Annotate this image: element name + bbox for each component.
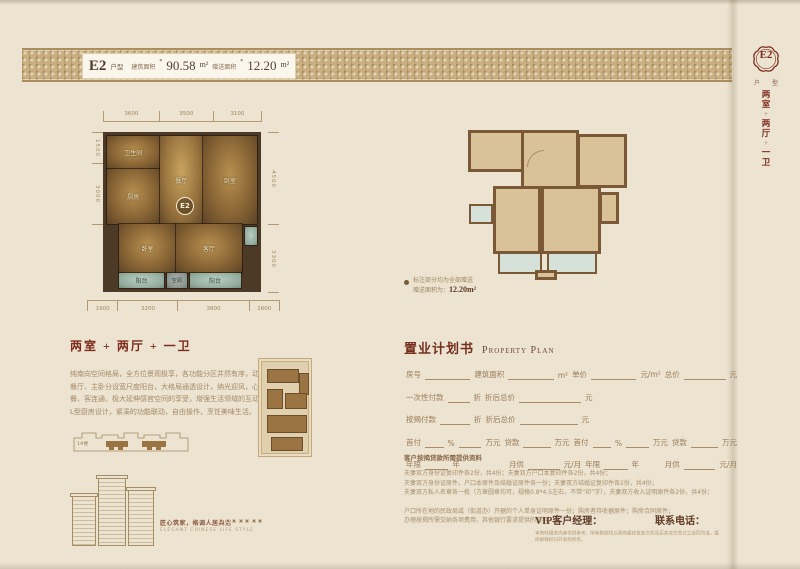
form-blank [523,439,550,448]
slogan-squares [219,519,262,523]
docs-paragraph-1: 夫妻双方身份证复印件各2份，共4份；夫妻双方户口本复印件各2份，共4份；夫妻双方… [404,469,739,498]
area-unit: m² [200,60,209,69]
form-blank [593,439,612,448]
keyplan-strip: 1#楼 [72,428,190,458]
disclaimer: 本资料相关内容仅供参考，所有数据均以政府最终批准文件及买卖双方签订之合同为准，最… [535,530,719,543]
square-icon [252,519,256,523]
bonus-note-line1: 标注部分均为全部赠送 [413,277,543,286]
form-title-cn: 置业计划书 [404,338,474,357]
outline-room [541,186,601,254]
form-blank [684,371,726,380]
outline-room [468,130,524,172]
bonus-note-value: 12.20m² [449,285,476,294]
slogan-en: ELEGANT CHINESE LIFE STYLE [160,528,270,533]
layout-title: 两室 + 两厅 + 一卫 [70,337,310,354]
room-bathroom: 卫生间 [107,136,160,169]
side-unit-label: 户 型 [744,78,788,87]
form-blank [459,439,482,448]
contact-phone-label: 联系电话： [655,512,705,527]
plan-unit-badge: E2 [176,197,194,215]
square-icon [245,519,249,523]
form-blank [691,439,718,448]
bullet-icon [404,280,409,285]
side-vertical-layout: 两室+两厅+一卫 [748,90,784,167]
form-title-en: Property Plan [482,345,554,356]
dims-left: 15003000 [92,132,103,225]
bonus-note-line2: 赠送面积为： [413,287,449,294]
form-blank [508,371,553,380]
outline-balcony [469,204,493,224]
form-blank [626,439,649,448]
outline-room [577,134,627,188]
dims-bottom: 1600320038001600 [87,300,280,311]
square-icon [226,519,230,523]
keyplan-label: 1#楼 [77,440,89,447]
room-kitchen: 厨房 [107,169,160,224]
form-blank [440,416,470,425]
unit-suffix: 户型 [110,61,123,71]
room-ac-side [245,227,257,245]
area-approx-mark: * [159,59,162,65]
rendered-floorplan: 卫生间 厨房 餐厅 卧室 卧室 客厅 阳台 空调 阳台 E2 [103,132,261,292]
form-blank [425,439,444,448]
bonus-approx-mark: * [240,59,243,65]
form-blank [520,416,578,425]
square-icon [232,519,236,523]
room-balcony-right: 阳台 [190,273,241,288]
header-ornament-band: E2 户型 建筑面积 * 90.58 m² 赠送面积 * 12.20 m² [22,48,732,82]
form-blank [591,371,636,380]
room-balcony-left: 阳台 [119,273,164,288]
square-icon [258,519,262,523]
square-icon [219,519,223,523]
room-living: 客厅 [176,224,242,273]
area-label: 建筑面积 [131,62,155,71]
unit-code: E2 [89,58,107,75]
docs-heading: 客户按揭贷款所需提供资料 [404,452,739,462]
form-blank [425,371,470,380]
side-unit-code: E2 [750,49,782,61]
outline-room [493,186,541,254]
side-tab: E2 户 型 两室+两厅+一卫 [736,0,800,569]
dims-top: 360035003100 [103,111,262,122]
form-blank [448,394,470,403]
room-bedroom-right: 卧室 [203,136,257,224]
room-bedroom-left: 卧室 [119,224,176,273]
brochure-page: E2 户型 建筑面积 * 90.58 m² 赠送面积 * 12.20 m² E2… [0,0,800,569]
room-ac-platform: 空调 [167,273,187,288]
square-icon [239,519,243,523]
dims-right: 45003300 [268,132,279,293]
outline-floorplan [465,126,630,288]
form-blank [519,394,581,403]
mini-plan-decoration [258,358,312,457]
header-label: E2 户型 建筑面积 * 90.58 m² 赠送面积 * 12.20 m² [82,53,296,79]
bonus-value: 12.20 [247,58,276,74]
bonus-label: 赠送面积 [212,62,236,71]
outline-room [599,192,619,224]
area-value: 90.58 [166,58,195,74]
bonus-unit: m² [281,60,290,69]
bonus-note: 标注部分均为全部赠送 赠送面积为：12.20m² [413,277,543,295]
building-illustration [70,470,162,548]
vip-manager-label: VIP客户经理： [535,512,602,527]
